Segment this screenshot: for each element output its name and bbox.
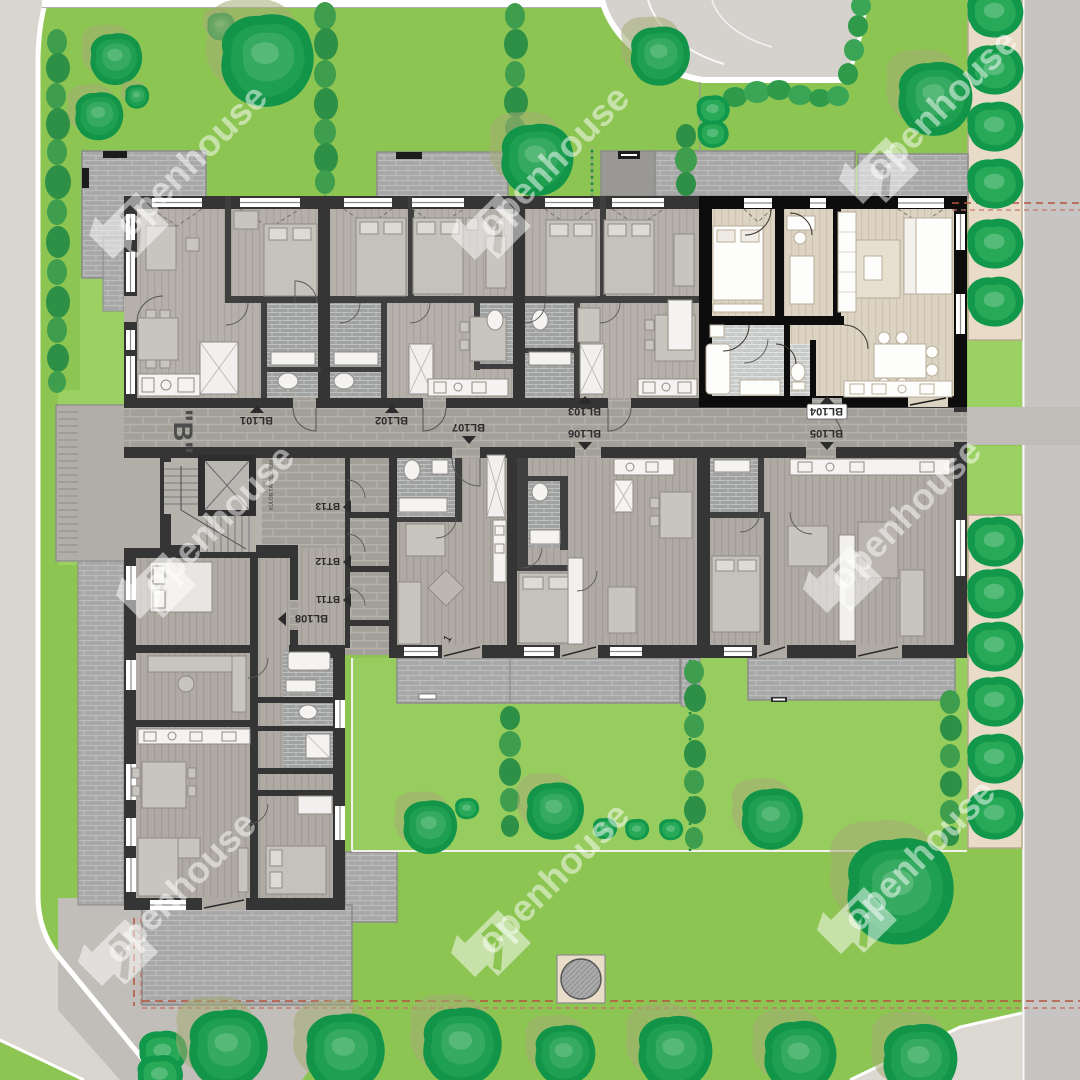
svg-text:BT13: BT13 bbox=[315, 500, 340, 511]
svg-text:BL103: BL103 bbox=[568, 405, 601, 417]
svg-text:BT11: BT11 bbox=[316, 593, 340, 604]
svg-text:BL106: BL106 bbox=[568, 427, 601, 439]
svg-text:BL105: BL105 bbox=[810, 427, 843, 439]
svg-text:BL104: BL104 bbox=[809, 405, 843, 417]
svg-text:BL102: BL102 bbox=[375, 414, 408, 426]
svg-text:BT12: BT12 bbox=[315, 555, 340, 566]
svg-text:"B": "B" bbox=[168, 409, 198, 454]
svg-text:BL107: BL107 bbox=[452, 421, 485, 433]
svg-text:BL101: BL101 bbox=[240, 414, 273, 426]
svg-text:BL108: BL108 bbox=[295, 612, 328, 624]
